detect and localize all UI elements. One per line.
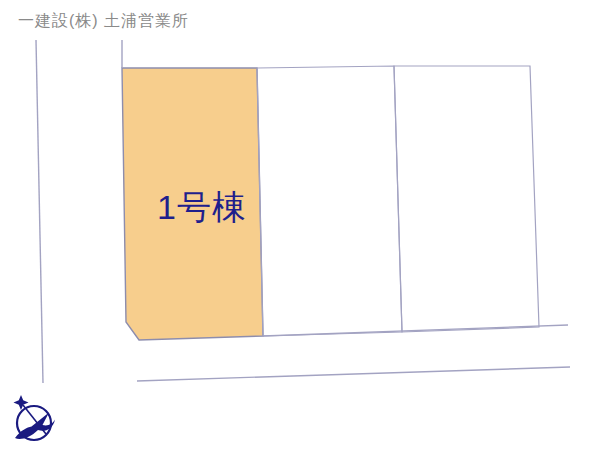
- site-plan-drawing: [0, 0, 600, 450]
- road-boundary-bottom-line: [137, 367, 570, 381]
- compass-north-icon: [10, 393, 58, 445]
- site-plan-page: 一建設(株) 土浦営業所 1号棟: [0, 0, 600, 450]
- plots-bottom-boundary-line: [263, 325, 568, 336]
- plot-2-area: [257, 66, 402, 336]
- road-boundary-left-line: [36, 40, 43, 383]
- plot-1-label: 1号棟: [146, 185, 258, 231]
- plot-3-area: [394, 66, 539, 332]
